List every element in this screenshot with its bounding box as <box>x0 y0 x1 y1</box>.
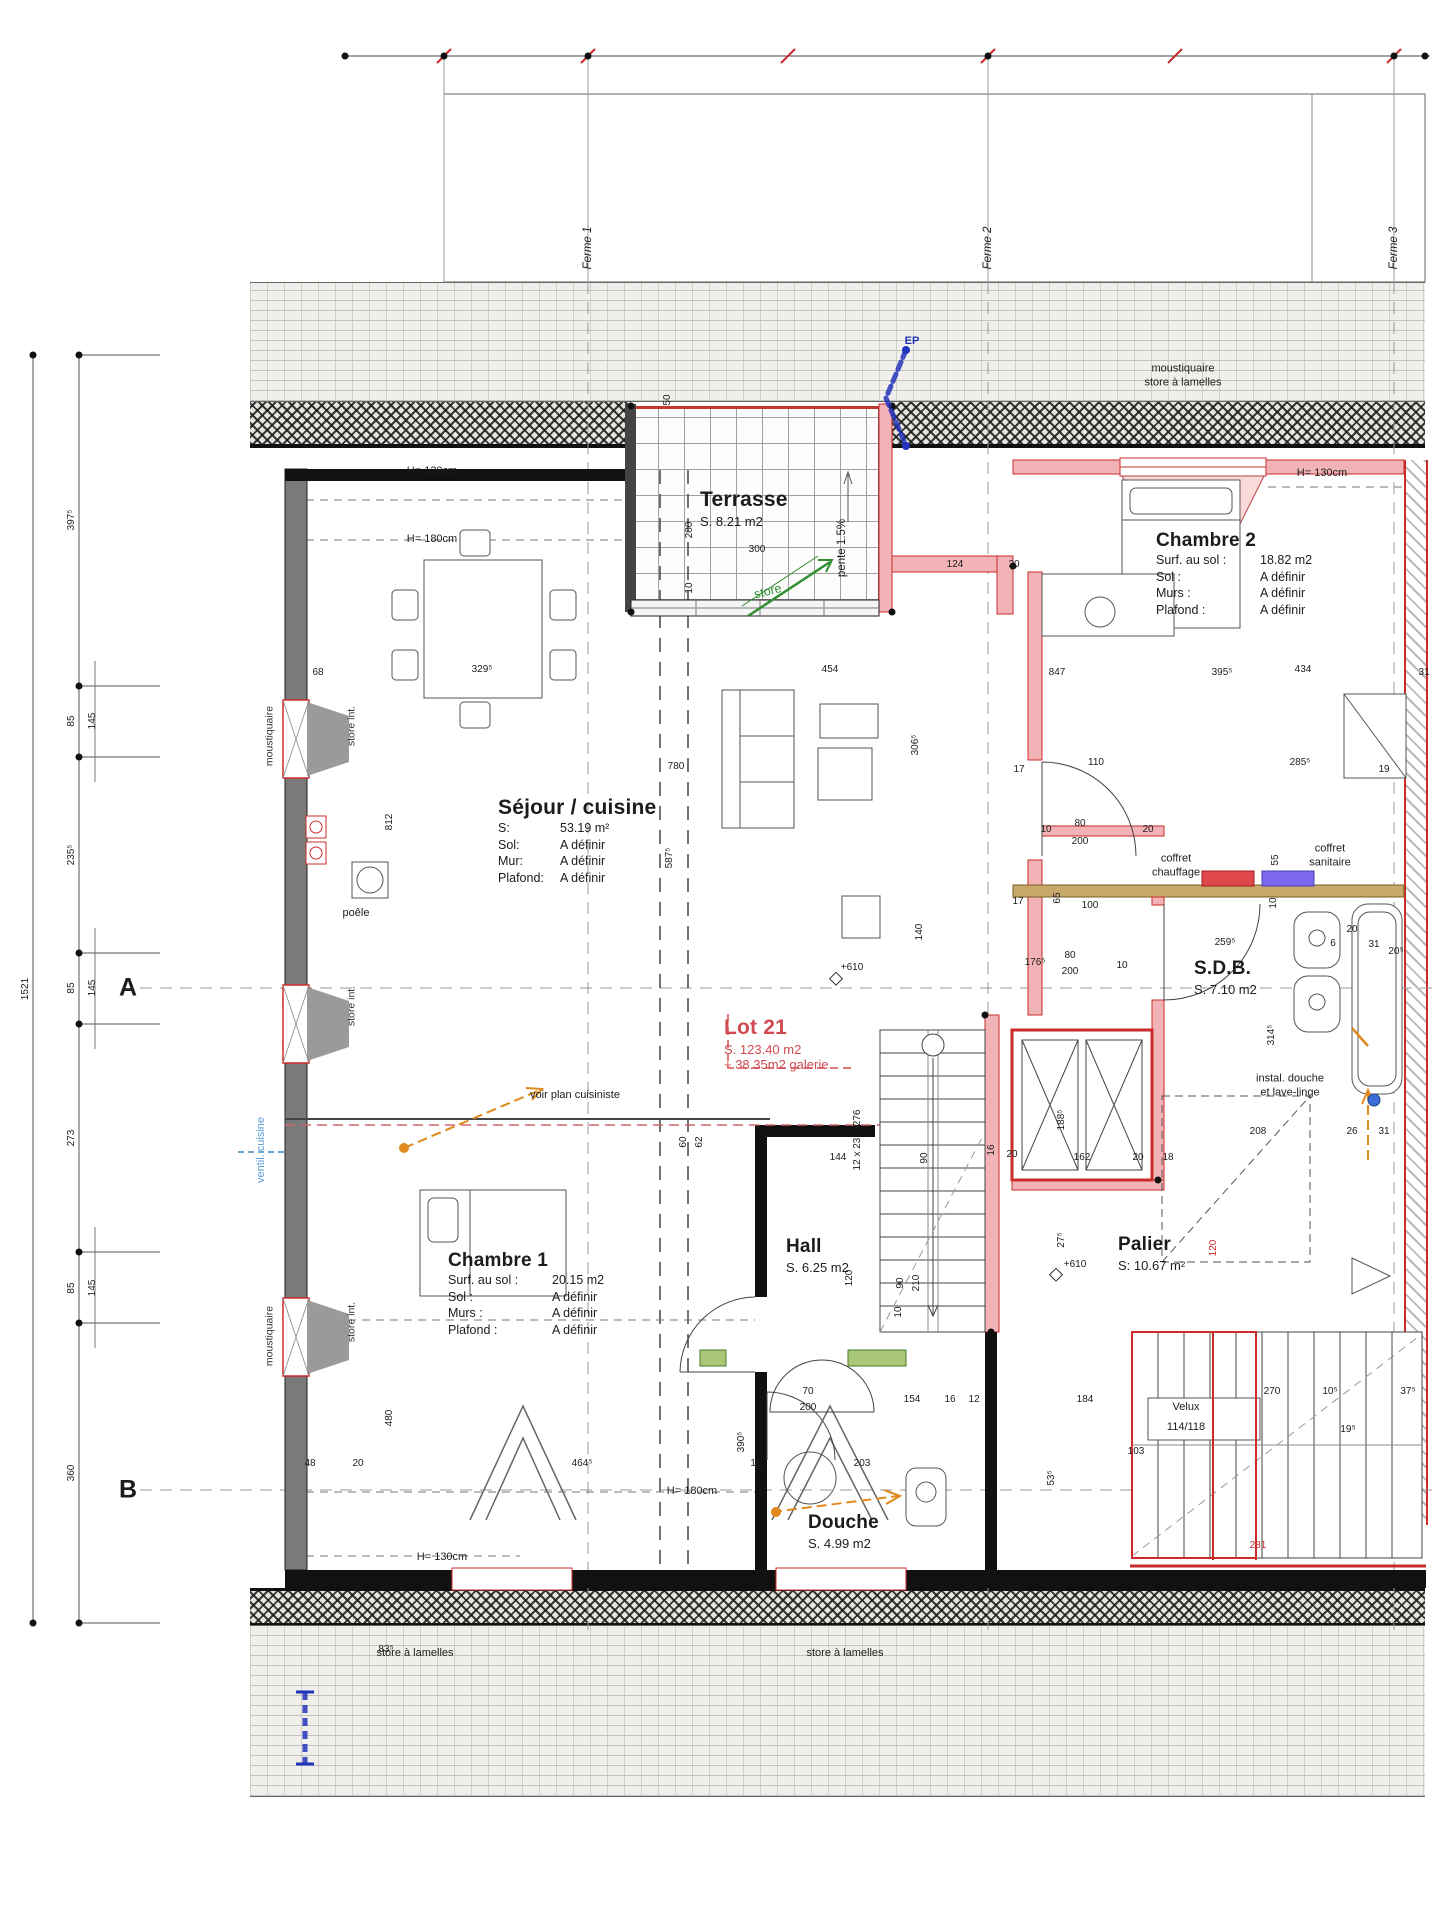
annotation-label: store int. <box>345 706 358 746</box>
dim-label: 6 <box>1330 938 1336 951</box>
room-info-value: A définir <box>552 1305 597 1322</box>
annotation-label: B <box>119 1474 137 1505</box>
annotation-label: coffret chauffage <box>1152 852 1200 880</box>
dim-label: 20 <box>1346 924 1357 937</box>
left-dimension-chain <box>30 352 161 1627</box>
dim-label: 145 <box>87 980 100 997</box>
dim-label: 60 <box>678 1136 691 1147</box>
annotation-label: H= 180cm <box>407 533 457 547</box>
dim-label: 235⁵ <box>66 845 79 866</box>
dim-label: 145 <box>87 713 100 730</box>
room-info-value: A définir <box>560 837 605 854</box>
room-block-sejour: Séjour / cuisine S:53.19 m² Sol:A défini… <box>498 796 656 886</box>
dim-label: 200 <box>1062 966 1079 979</box>
room-info-key: Sol : <box>448 1289 552 1306</box>
dim-label: 17 <box>1013 764 1024 777</box>
annotation-label: Ferme 1 <box>581 227 595 270</box>
roof-hatch-top <box>250 282 1425 402</box>
dim-label: 210 <box>911 1275 924 1292</box>
dim-label: 10 <box>1268 897 1281 908</box>
room-area-terrasse: S. 8.21 m2 <box>700 514 788 529</box>
stairs-central <box>880 1030 985 1332</box>
room-info-key: Plafond: <box>498 870 560 887</box>
dim-label: 434 <box>1295 664 1312 677</box>
dim-label: 203 <box>854 1458 871 1471</box>
dim-label: 395⁵ <box>1212 667 1233 680</box>
room-info-key: S: <box>498 820 560 837</box>
room-info-key: Plafond : <box>448 1322 552 1339</box>
room-area-hall: S. 6.25 m2 <box>786 1260 849 1275</box>
room-block-chambre2: Chambre 2 Surf. au sol :18.82 m2 Sol :A … <box>1156 530 1312 618</box>
dim-label: 124 <box>947 559 964 572</box>
dim-label: 184 <box>1077 1394 1094 1407</box>
annotation-label: moustiquaire <box>263 1306 276 1366</box>
lot-label-block: Lot 21 S. 123.40 m2 + 38.35m2 galerie <box>724 1016 828 1072</box>
dim-label: 780 <box>668 761 685 774</box>
dim-label: 55 <box>1270 854 1283 865</box>
lot-area: S. 123.40 m2 <box>724 1042 828 1057</box>
room-info-key: Murs : <box>448 1305 552 1322</box>
room-info-value: A définir <box>552 1289 597 1306</box>
furniture-chambre2 <box>1042 480 1406 778</box>
dim-label: 145 <box>87 1280 100 1297</box>
annotation-label: store int. <box>345 986 358 1026</box>
room-area-sdb: S. 7.10 m2 <box>1194 982 1257 997</box>
dim-label: 314⁵ <box>1266 1025 1279 1046</box>
annotation-label: H= 130cm <box>407 465 457 479</box>
dim-label: 464⁵ <box>572 1458 593 1471</box>
room-info-key: Mur: <box>498 853 560 870</box>
dim-label: 144 <box>830 1152 847 1165</box>
room-info-value: 20.15 m2 <box>552 1272 604 1289</box>
room-title-terrasse: Terrasse <box>700 488 788 512</box>
annotation-label: moustiquaire <box>263 706 276 766</box>
dim-label: 397⁵ <box>66 510 79 531</box>
dim-label: 259⁵ <box>1215 937 1236 950</box>
room-info-key: Sol: <box>498 837 560 854</box>
annotation-label: voir plan cuisiniste <box>530 1089 620 1103</box>
dim-label: 68 <box>312 667 323 680</box>
dim-label: 27⁵ <box>1056 1232 1069 1247</box>
dim-label: 10⁵ <box>1322 1386 1337 1399</box>
annotation-label: ventil. cuisine <box>255 1117 269 1183</box>
doors <box>680 762 1260 1460</box>
dim-label: 306⁵ <box>910 735 923 756</box>
dim-label: 162 <box>1074 1152 1091 1165</box>
annotation-label: Velux <box>1173 1401 1200 1415</box>
annotation-label: Ferme 2 <box>981 227 995 270</box>
dim-label: 48 <box>304 1458 315 1471</box>
dim-label: 10 <box>1040 824 1051 837</box>
dim-label: 80 <box>1074 818 1085 831</box>
annotation-label: A <box>119 972 137 1003</box>
dim-label: 31 <box>1378 1126 1389 1139</box>
green-sills <box>700 1350 906 1366</box>
room-block-douche: Douche S. 4.99 m2 <box>808 1512 879 1551</box>
dim-label: 20 <box>1006 1149 1017 1162</box>
annotation-label: instal. douche et lave-linge <box>1256 1072 1324 1100</box>
room-info-value: A définir <box>560 853 605 870</box>
dim-label: 120 <box>1208 1240 1221 1257</box>
dim-label: +610 <box>1064 1259 1087 1272</box>
dim-label: 454 <box>822 664 839 677</box>
room-info-value: A définir <box>1260 569 1305 586</box>
dim-label: 587⁵ <box>664 848 677 869</box>
annotation-label: coffret sanitaire <box>1309 842 1351 870</box>
dim-label: 20 <box>1142 824 1153 837</box>
dim-label: 53⁵ <box>1046 1470 1059 1485</box>
room-info-value: A définir <box>560 870 605 887</box>
dim-label: 90 <box>895 1277 908 1288</box>
dim-label: 65 <box>1052 892 1065 903</box>
dim-label: 329⁵ <box>472 664 493 677</box>
dim-label: 20 <box>352 1458 363 1471</box>
dim-label: 20 <box>1132 1152 1143 1165</box>
dim-label: 360 <box>66 1465 79 1482</box>
dim-label: 154 <box>904 1394 921 1407</box>
room-block-terrasse: Terrasse S. 8.21 m2 <box>700 488 788 529</box>
dim-label: 10 <box>1116 960 1127 973</box>
floor-plan-canvas: 502001030012420454780306⁵329⁵68812587⁵17… <box>0 0 1440 1920</box>
top-ruler <box>342 49 1431 282</box>
roof-hatch-bottom <box>250 1625 1425 1797</box>
dim-label: 16 <box>944 1394 955 1407</box>
room-info-value: A définir <box>1260 585 1305 602</box>
dim-label: 188⁵ <box>1056 1110 1069 1131</box>
room-info-value: A définir <box>552 1322 597 1339</box>
room-title-chambre1: Chambre 1 <box>448 1250 604 1272</box>
room-info-key: Sol : <box>1156 569 1260 586</box>
room-block-sdb: S.D.B. S. 7.10 m2 <box>1194 958 1257 997</box>
dim-label: 110 <box>1088 757 1104 770</box>
dim-label: 103 <box>1128 1446 1145 1459</box>
dim-label: 62 <box>694 1136 707 1147</box>
dim-label: 390⁵ <box>736 1432 749 1453</box>
room-title-douche: Douche <box>808 1512 879 1534</box>
annotation-label: poêle <box>343 907 370 921</box>
dim-label: 31 <box>1368 939 1379 952</box>
dim-label: 85 <box>66 715 79 726</box>
dim-label: 19 <box>1378 764 1389 777</box>
insulation-strip-bottom <box>250 1588 1425 1625</box>
insulation-strip-top-right <box>892 402 1425 448</box>
room-info-key: Murs : <box>1156 585 1260 602</box>
dim-label: 847 <box>1049 667 1066 680</box>
dim-label: 285⁵ <box>1290 757 1311 770</box>
dim-label: 20 <box>1008 559 1019 572</box>
room-title-hall: Hall <box>786 1236 849 1258</box>
dim-label: 80 <box>1064 950 1075 963</box>
room-info-value: A définir <box>1260 602 1305 619</box>
dim-label: 85 <box>66 1282 79 1293</box>
dim-label: 270 <box>1264 1386 1281 1399</box>
annotation-label: store int. <box>345 1302 358 1342</box>
room-info-key: Surf. au sol : <box>1156 552 1260 569</box>
dim-label: 273 <box>66 1130 79 1147</box>
room-block-hall: Hall S. 6.25 m2 <box>786 1236 849 1275</box>
dim-label: 20⁵ <box>1388 946 1403 959</box>
lot-title: Lot 21 <box>724 1016 828 1040</box>
annotation-label: H= 130cm <box>1297 467 1347 481</box>
dim-label: 281 <box>1250 1540 1267 1553</box>
dim-label: 17 <box>1012 896 1023 909</box>
room-title-sdb: S.D.B. <box>1194 958 1257 980</box>
room-block-palier: Palier S: 10.67 m² <box>1118 1234 1185 1273</box>
room-info-value: 18.82 m2 <box>1260 552 1312 569</box>
room-block-chambre1: Chambre 1 Surf. au sol :20.15 m2 Sol :A … <box>448 1250 604 1338</box>
room-info-key: Plafond : <box>1156 602 1260 619</box>
dim-label: 16 <box>986 1144 999 1155</box>
dim-label: 100 <box>1082 900 1099 913</box>
room-area-douche: S. 4.99 m2 <box>808 1536 879 1551</box>
room-title-sejour: Séjour / cuisine <box>498 796 656 820</box>
dim-label: 12 <box>968 1394 979 1407</box>
dim-label: 200 <box>1072 836 1089 849</box>
annotation-label: 114/118 <box>1167 1421 1205 1435</box>
furniture-chambre1 <box>420 1190 576 1520</box>
dim-label: 26 <box>1346 1126 1357 1139</box>
dim-label: 480 <box>384 1410 397 1427</box>
dim-label: 176⁵ <box>1025 957 1046 970</box>
annotation-label: Ferme 3 <box>1387 227 1401 270</box>
room-area-palier: S: 10.67 m² <box>1118 1258 1185 1273</box>
dim-label: 208 <box>1250 1126 1267 1139</box>
room-info-value: 53.19 m² <box>560 820 609 837</box>
dim-label: 12 x 23 = 276 <box>852 1110 865 1171</box>
lot-extra: + 38.35m2 galerie <box>724 1057 828 1072</box>
dim-label: 1521 <box>20 978 33 1000</box>
room-title-chambre2: Chambre 2 <box>1156 530 1312 552</box>
dim-label: 85 <box>66 982 79 993</box>
furniture-douche <box>772 1406 946 1526</box>
room-title-palier: Palier <box>1118 1234 1185 1256</box>
dim-label: 15⁵ <box>750 1458 765 1471</box>
dim-label: 812 <box>384 814 397 831</box>
dim-label: 10 <box>893 1306 906 1317</box>
dim-label: 140 <box>914 924 927 941</box>
insulation-strip-top-left <box>250 402 631 448</box>
dim-label: 90 <box>919 1152 932 1163</box>
annotation-label: H= 180cm <box>667 1485 717 1499</box>
dim-label: 200 <box>800 1402 817 1415</box>
dim-label: 70 <box>802 1386 813 1399</box>
dim-label: +610 <box>841 962 864 975</box>
room-info-key: Surf. au sol : <box>448 1272 552 1289</box>
dim-label: 18 <box>1162 1152 1173 1165</box>
sloped-roof-wall-right <box>1404 460 1428 1525</box>
annotation-label: H= 130cm <box>417 1551 467 1565</box>
stairs-right <box>1132 1258 1422 1560</box>
dim-label: 19⁵ <box>1340 1424 1355 1437</box>
